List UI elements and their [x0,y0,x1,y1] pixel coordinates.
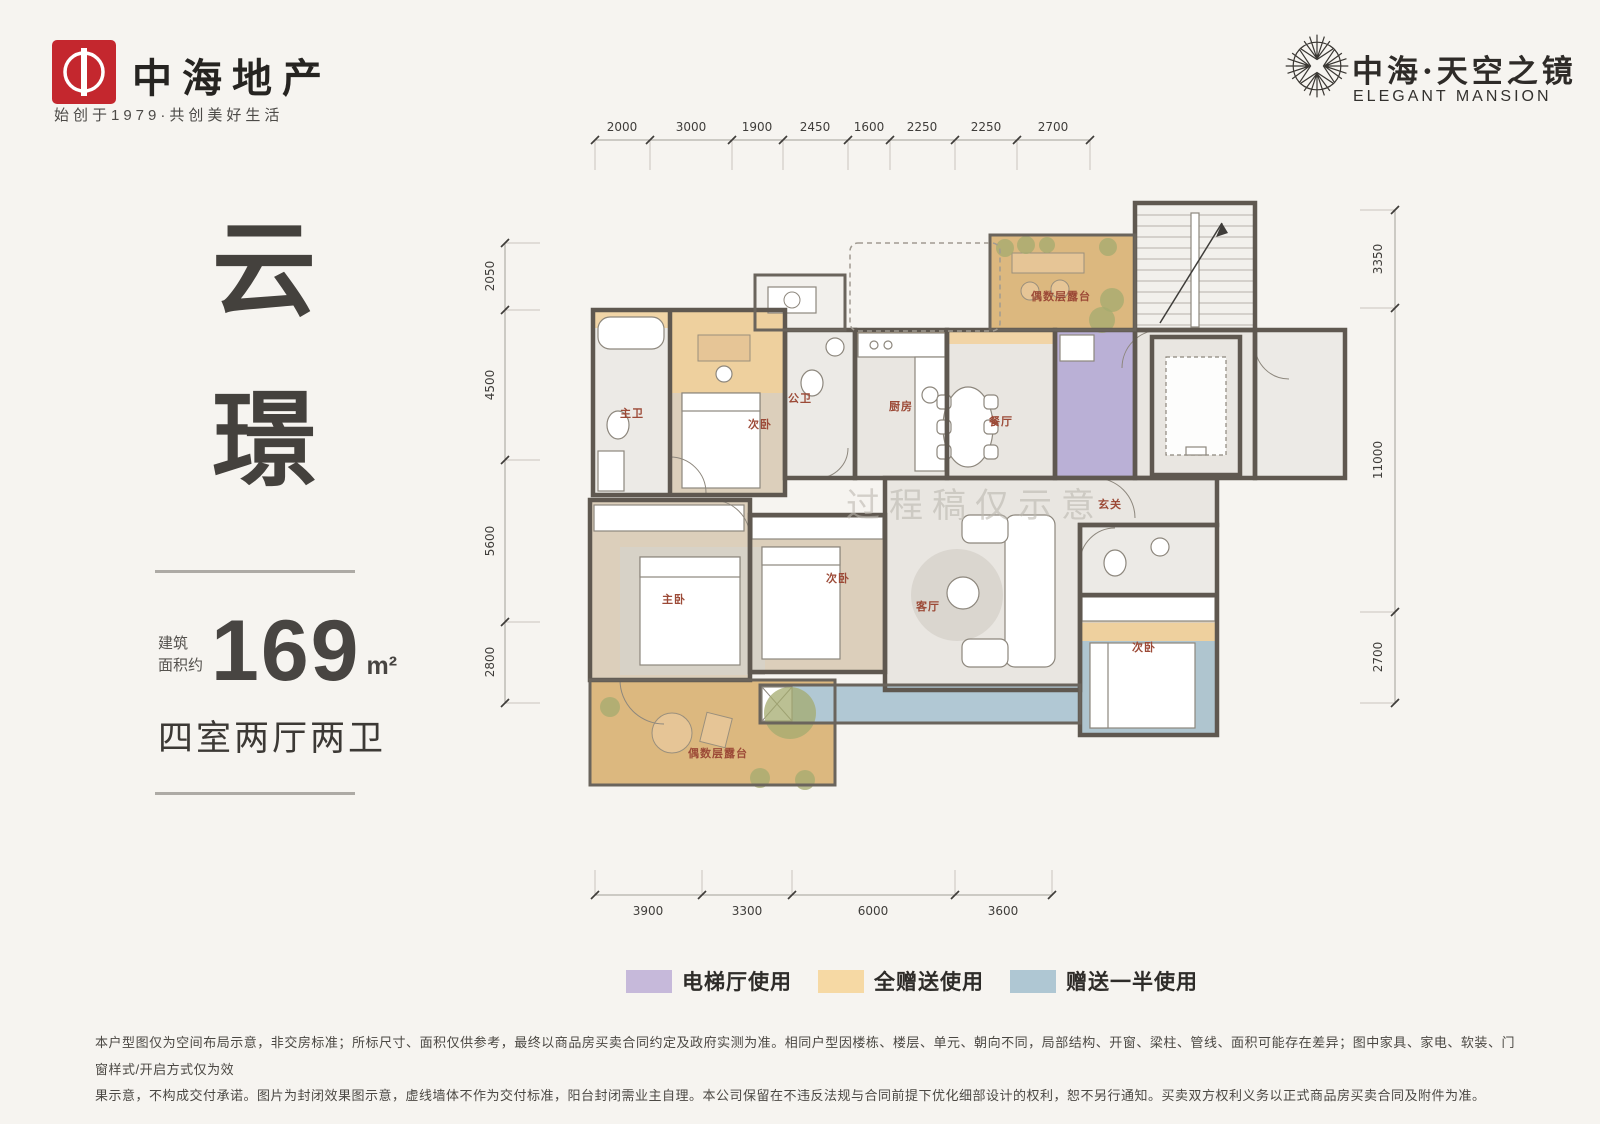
developer-name: 中海地产 [132,46,332,104]
room-label-master-bedroom: 主卧 [662,592,686,606]
room-label-bedroom-right: 次卧 [1132,640,1156,654]
dim-right-1: 11000 [1371,441,1385,479]
unit-title-char-1: 云 [212,218,316,322]
area-info: 建筑 面积约 169 m² [158,616,397,687]
disclaimer-line-1: 本户型图仅为空间布局示意，非交房标准；所标尺寸、面积仅供参考，最终以商品房买卖合… [95,1030,1515,1083]
room-label-bedroom-middle: 次卧 [826,571,850,585]
dim-bottom-0: 3900 [633,904,664,918]
dim-left-1: 4500 [483,370,497,401]
room-label-living-room: 客厅 [915,599,940,613]
disclaimer-line-2: 果示意，不构成交付承诺。图片为封闭效果图示意，虚线墙体不作为交付标准，阳台封闭需… [95,1083,1515,1110]
divider-bottom [155,792,355,795]
developer-tagline: 始创于1979·共创美好生活 [54,104,283,125]
legend-swatch-orange [818,970,864,993]
room-label-guest-bath: 公卫 [788,392,812,405]
room-label-kitchen: 厨房 [889,399,913,413]
area-prefix-line2: 面积约 [158,655,203,677]
legend-label-full-gift: 全赠送使用 [874,966,984,996]
floor-plan-poster: 中海地产 始创于1979·共创美好生活 中海·天空之镜 ELEGANT MANS… [0,0,1600,1124]
area-unit: m² [367,652,398,681]
dim-top-4: 1600 [854,120,885,134]
unit-title-char-2: 璟 [212,388,316,492]
legend-label-half-gift: 赠送一半使用 [1066,966,1198,996]
room-label-master-bath: 主卫 [620,406,644,420]
area-prefix: 建筑 面积约 [158,633,203,677]
dim-left-3: 2800 [483,647,497,678]
developer-logo-icon [52,40,116,104]
legend-item-full-gift: 全赠送使用 [818,966,984,996]
dim-bottom-2: 6000 [858,904,889,918]
dim-right-0: 3350 [1371,244,1385,275]
divider-top [155,570,355,573]
dim-top-2: 1900 [742,120,773,134]
dim-top-5: 2250 [907,120,938,134]
watermark-text: 过程稿仅示意 [846,487,1104,525]
area-prefix-line1: 建筑 [158,633,203,655]
dim-right-2: 2700 [1371,642,1385,673]
dim-top-7: 2700 [1038,120,1069,134]
room-label-dining: 餐厅 [988,414,1013,428]
area-value: 169 [211,616,361,687]
dim-bottom-1: 3300 [732,904,763,918]
legend-item-half-gift: 赠送一半使用 [1010,966,1198,996]
dim-top-1: 3000 [676,120,707,134]
dim-top-3: 2450 [800,120,831,134]
legend-item-elevator-hall: 电梯厅使用 [626,966,792,996]
unit-title: 云 璟 [212,218,316,492]
room-label-terrace-bottom: 偶数层露台 [688,746,748,760]
dim-left-2: 5600 [483,526,497,557]
project-name: 中海·天空之镜 [1352,46,1577,91]
dim-top-0: 2000 [607,120,638,134]
floor-plan: 主卫 次卧 公卫 厨房 餐厅 玄关 主卧 次卧 客厅 次卧 偶数层露台 偶数层露… [460,95,1420,925]
legend: 电梯厅使用 全赠送使用 赠送一半使用 [626,966,1198,996]
room-label-bedroom-top: 次卧 [748,417,772,431]
unit-layout-text: 四室两厅两卫 [158,710,386,761]
legend-label-elevator-hall: 电梯厅使用 [682,966,792,996]
dim-left-0: 2050 [483,261,497,292]
legend-swatch-blue [1010,970,1056,993]
dim-bottom-3: 3600 [988,904,1019,918]
dim-top-6: 2250 [971,120,1002,134]
legend-swatch-purple [626,970,672,993]
disclaimer: 本户型图仅为空间布局示意，非交房标准；所标尺寸、面积仅供参考，最终以商品房买卖合… [95,1030,1515,1110]
room-label-terrace-top: 偶数层露台 [1031,289,1091,303]
zhonghai-logo-glyph [52,40,116,104]
